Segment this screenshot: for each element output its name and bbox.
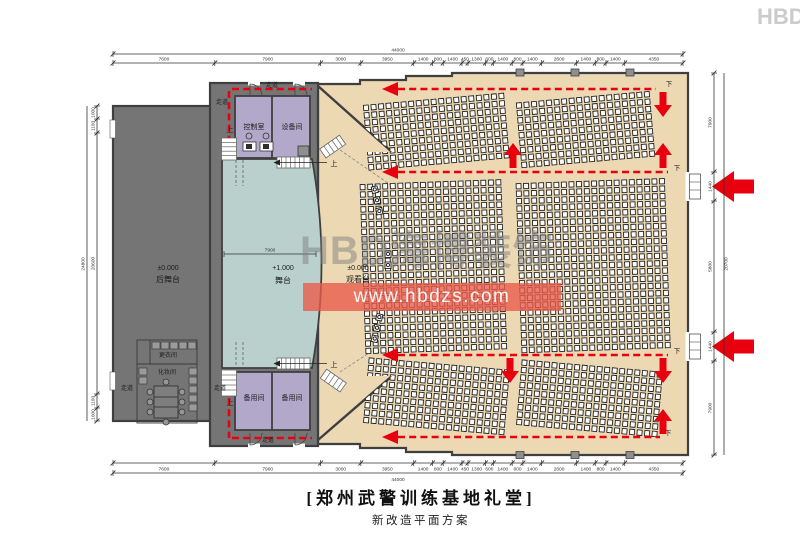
- seat: [609, 255, 614, 260]
- seat: [497, 217, 502, 222]
- seat: [419, 130, 424, 136]
- seat: [543, 153, 548, 159]
- seat: [469, 285, 474, 290]
- seat: [498, 254, 503, 259]
- seat: [431, 271, 436, 276]
- seat: [649, 151, 654, 157]
- seat: [403, 124, 408, 130]
- seat: [663, 290, 668, 295]
- seat: [587, 278, 592, 283]
- seat: [362, 229, 367, 234]
- seat: [414, 362, 419, 368]
- seat: [625, 269, 630, 274]
- seat: [478, 405, 483, 411]
- seat: [497, 209, 502, 214]
- seat: [371, 266, 376, 271]
- seat: [544, 332, 549, 337]
- seat: [411, 347, 416, 352]
- seat: [471, 322, 476, 327]
- seat: [660, 193, 665, 198]
- seat: [443, 150, 448, 156]
- seat: [549, 272, 554, 277]
- seat: [599, 426, 604, 432]
- seat: [558, 144, 563, 150]
- seat: [424, 294, 429, 299]
- seat: [551, 370, 556, 376]
- seat: [481, 147, 486, 153]
- seat: [586, 119, 591, 125]
- seat: [391, 367, 396, 373]
- seat: [454, 105, 459, 111]
- dim-label: 1400: [418, 57, 429, 63]
- seat: [562, 423, 567, 429]
- seat: [574, 323, 579, 328]
- seat: [451, 150, 456, 156]
- seat: [565, 294, 570, 299]
- seat: [580, 278, 585, 283]
- seat: [550, 294, 555, 299]
- seat: [383, 198, 388, 203]
- seat: [497, 369, 502, 375]
- seat: [451, 157, 456, 163]
- seat: [398, 375, 403, 381]
- seat: [365, 318, 370, 323]
- seat: [395, 405, 400, 411]
- seat: [407, 227, 412, 232]
- seat: [566, 371, 571, 377]
- seat: [432, 309, 437, 314]
- seat: [592, 203, 597, 208]
- seat: [428, 152, 433, 158]
- seat: [634, 328, 639, 333]
- seat: [484, 284, 489, 289]
- seat: [579, 248, 584, 253]
- seat: [600, 419, 605, 425]
- seat: [380, 118, 385, 124]
- seat: [458, 381, 463, 387]
- seat: [637, 187, 642, 192]
- seat: [476, 427, 481, 433]
- seat: [361, 214, 366, 219]
- seat: [552, 346, 557, 351]
- seat: [592, 188, 597, 193]
- seat: [647, 246, 652, 251]
- seat: [386, 273, 391, 278]
- seat: [485, 413, 490, 419]
- seat: [516, 184, 521, 189]
- seat: [498, 232, 503, 237]
- seat: [498, 239, 503, 244]
- seat: [464, 134, 469, 140]
- seat: [611, 307, 616, 312]
- seat: [589, 315, 594, 320]
- seat: [537, 361, 542, 367]
- seat: [607, 102, 612, 108]
- seat: [645, 423, 650, 429]
- seat: [377, 236, 382, 241]
- seat: [611, 147, 616, 153]
- seat: [573, 293, 578, 298]
- seat: [549, 400, 554, 406]
- seat: [436, 158, 441, 164]
- seat: [640, 284, 645, 289]
- seat: [637, 100, 642, 106]
- seat: [600, 218, 605, 223]
- seat: [412, 146, 417, 152]
- seat: [551, 309, 556, 314]
- seat: [440, 316, 445, 321]
- seat: [455, 308, 460, 313]
- seat: [605, 344, 610, 349]
- seat: [524, 206, 529, 211]
- seat: [588, 300, 593, 305]
- seat: [387, 295, 392, 300]
- seat: [495, 391, 500, 397]
- seat: [588, 285, 593, 290]
- seat: [584, 97, 589, 103]
- seat: [402, 310, 407, 315]
- seat: [377, 243, 382, 248]
- seat: [578, 219, 583, 224]
- dim-label: 1440: [708, 341, 714, 352]
- seat: [548, 122, 553, 128]
- seat: [470, 315, 475, 320]
- seat: [525, 405, 530, 411]
- seat: [565, 386, 570, 392]
- seat: [610, 285, 615, 290]
- seat: [405, 183, 410, 188]
- seat: [619, 322, 624, 327]
- seat: [577, 204, 582, 209]
- seat: [527, 295, 532, 300]
- seat: [502, 343, 507, 348]
- seat: [490, 239, 495, 244]
- seat: [543, 294, 548, 299]
- seat: [620, 344, 625, 349]
- seat: [452, 218, 457, 223]
- seat: [441, 128, 446, 134]
- seat: [555, 227, 560, 232]
- seat: [413, 190, 418, 195]
- seat: [413, 183, 418, 188]
- seat: [495, 384, 500, 390]
- audience-level: ±0.000: [347, 265, 368, 272]
- seat: [471, 330, 476, 335]
- seat: [541, 257, 546, 262]
- seat: [540, 227, 545, 232]
- seat: [409, 295, 414, 300]
- seat: [623, 217, 628, 222]
- seat: [570, 113, 575, 119]
- up-marker: 上: [227, 125, 234, 134]
- seat: [420, 377, 425, 383]
- seat: [549, 392, 554, 398]
- seat: [602, 262, 607, 267]
- seat: [540, 108, 545, 114]
- seat: [609, 247, 614, 252]
- seat: [529, 332, 534, 337]
- seat: [626, 299, 631, 304]
- seat: [484, 94, 489, 100]
- seat: [485, 307, 490, 312]
- seat: [439, 416, 444, 422]
- seat: [469, 278, 474, 283]
- seat: [561, 182, 566, 187]
- seat: [470, 292, 475, 297]
- seat: [430, 249, 435, 254]
- seat: [406, 161, 411, 167]
- seat: [627, 153, 632, 159]
- seat: [600, 196, 605, 201]
- seat: [437, 234, 442, 239]
- seat: [624, 123, 629, 129]
- seat: [652, 179, 657, 184]
- seat: [611, 314, 616, 319]
- seat: [469, 426, 474, 432]
- seat: [488, 146, 493, 152]
- seat: [539, 198, 544, 203]
- seat: [418, 123, 423, 129]
- seat: [541, 123, 546, 129]
- seat: [516, 103, 521, 109]
- seat: [644, 179, 649, 184]
- seat: [664, 313, 669, 318]
- seat: [518, 404, 523, 410]
- seat: [432, 107, 437, 113]
- seat: [541, 242, 546, 247]
- up-marker: 上: [331, 360, 338, 369]
- seat: [481, 375, 486, 381]
- seat: [550, 302, 555, 307]
- seat: [417, 287, 422, 292]
- seat: [572, 387, 577, 393]
- seat: [426, 129, 431, 135]
- seat: [493, 299, 498, 304]
- seat: [619, 146, 624, 152]
- seat: [460, 241, 465, 246]
- seat: [542, 138, 547, 144]
- seat: [445, 234, 450, 239]
- seat: [595, 133, 600, 139]
- seat: [455, 300, 460, 305]
- seat: [414, 212, 419, 217]
- seat: [441, 394, 446, 400]
- seat: [439, 98, 444, 104]
- seat: [543, 309, 548, 314]
- seat: [479, 397, 484, 403]
- seat: [648, 283, 653, 288]
- seat: [641, 313, 646, 318]
- seat: [451, 372, 456, 378]
- seat: [565, 286, 570, 291]
- seat: [425, 301, 430, 306]
- seat: [466, 148, 471, 154]
- seat: [581, 380, 586, 386]
- down-marker: 下: [665, 429, 672, 437]
- seat: [376, 221, 381, 226]
- seat: [537, 347, 542, 352]
- seat: [502, 130, 507, 136]
- seat: [424, 279, 429, 284]
- seat: [396, 340, 401, 345]
- seat: [624, 116, 629, 122]
- dim-label: 800: [514, 467, 522, 473]
- seat: [581, 373, 586, 379]
- seat: [536, 369, 541, 375]
- seat: [548, 227, 553, 232]
- seat: [463, 330, 468, 335]
- seat: [597, 155, 602, 161]
- seat: [446, 278, 451, 283]
- seat: [362, 244, 367, 249]
- seat: [608, 225, 613, 230]
- seat: [581, 301, 586, 306]
- seat: [470, 412, 475, 418]
- seat: [593, 111, 598, 117]
- seat: [532, 198, 537, 203]
- seat: [469, 103, 474, 109]
- seat: [526, 258, 531, 263]
- seat: [478, 110, 483, 116]
- seat: [470, 307, 475, 312]
- seat: [430, 242, 435, 247]
- seat: [388, 133, 393, 139]
- seat: [474, 155, 479, 161]
- seat: [520, 147, 525, 153]
- seat: [411, 392, 416, 398]
- dim-label: 1440: [708, 181, 714, 192]
- seat: [463, 307, 468, 312]
- seat: [632, 247, 637, 252]
- seat: [424, 423, 429, 429]
- seat: [653, 216, 658, 221]
- seat: [569, 197, 574, 202]
- seat: [463, 404, 468, 410]
- dim-label: 7900: [708, 117, 714, 128]
- seat: [619, 329, 624, 334]
- seat: [402, 117, 407, 123]
- seat: [486, 337, 491, 342]
- seat: [559, 324, 564, 329]
- seat: [491, 254, 496, 259]
- seat: [615, 102, 620, 108]
- seat: [562, 189, 567, 194]
- seat: [633, 291, 638, 296]
- seat: [399, 361, 404, 367]
- seat: [397, 383, 402, 389]
- seat: [601, 248, 606, 253]
- seat: [494, 344, 499, 349]
- seat: [541, 130, 546, 136]
- seat: [442, 136, 447, 142]
- seat: [426, 400, 431, 406]
- seat: [586, 410, 591, 416]
- seat: [570, 226, 575, 231]
- seat: [389, 382, 394, 388]
- seat: [467, 210, 472, 215]
- seat: [368, 157, 373, 163]
- seat: [607, 180, 612, 185]
- seat: [536, 325, 541, 330]
- seat: [364, 112, 369, 118]
- seat: [603, 382, 608, 388]
- seat: [478, 117, 483, 123]
- seat: [431, 264, 436, 269]
- seat: [548, 407, 553, 413]
- dim-label: 2600: [554, 57, 565, 63]
- seat: [378, 266, 383, 271]
- seat: [384, 213, 389, 218]
- seat: [557, 136, 562, 142]
- dim-label: 2600: [554, 467, 565, 473]
- seat: [555, 204, 560, 209]
- seat: [638, 224, 643, 229]
- seat: [487, 344, 492, 349]
- seat: [389, 390, 394, 396]
- seat: [466, 181, 471, 186]
- seat: [383, 206, 388, 211]
- seat: [577, 211, 582, 216]
- seat: [467, 225, 472, 230]
- seat: [413, 369, 418, 375]
- seat: [384, 236, 389, 241]
- seat: [462, 418, 467, 424]
- seat: [548, 220, 553, 225]
- seat: [417, 302, 422, 307]
- seat: [658, 343, 663, 348]
- seat: [477, 300, 482, 305]
- seat: [617, 124, 622, 130]
- seat: [562, 204, 567, 209]
- seat: [549, 130, 554, 136]
- seat: [554, 99, 559, 105]
- seat: [576, 181, 581, 186]
- seat: [662, 238, 667, 243]
- seat: [472, 389, 477, 395]
- seat: [573, 143, 578, 149]
- seat: [520, 288, 525, 293]
- seat: [571, 409, 576, 415]
- dim-label: 20600: [91, 257, 97, 271]
- seat: [394, 280, 399, 285]
- seat: [617, 277, 622, 282]
- seat: [455, 112, 460, 118]
- seat: [638, 202, 643, 207]
- seat: [525, 412, 530, 418]
- seat: [401, 287, 406, 292]
- seat: [443, 372, 448, 378]
- makeup-table: [154, 386, 178, 418]
- seat: [471, 397, 476, 403]
- seat: [665, 335, 670, 340]
- seat: [405, 376, 410, 382]
- seat: [471, 337, 476, 342]
- control-room-label: 控制室: [244, 122, 265, 131]
- seat: [429, 159, 434, 165]
- seat: [654, 238, 659, 243]
- seat: [640, 276, 645, 281]
- seat: [391, 198, 396, 203]
- seat: [570, 204, 575, 209]
- seat: [396, 132, 401, 138]
- seat: [469, 96, 474, 102]
- seat: [456, 119, 461, 125]
- seat: [648, 136, 653, 142]
- seat: [393, 265, 398, 270]
- seat: [615, 195, 620, 200]
- seat: [604, 367, 609, 373]
- seat: [535, 295, 540, 300]
